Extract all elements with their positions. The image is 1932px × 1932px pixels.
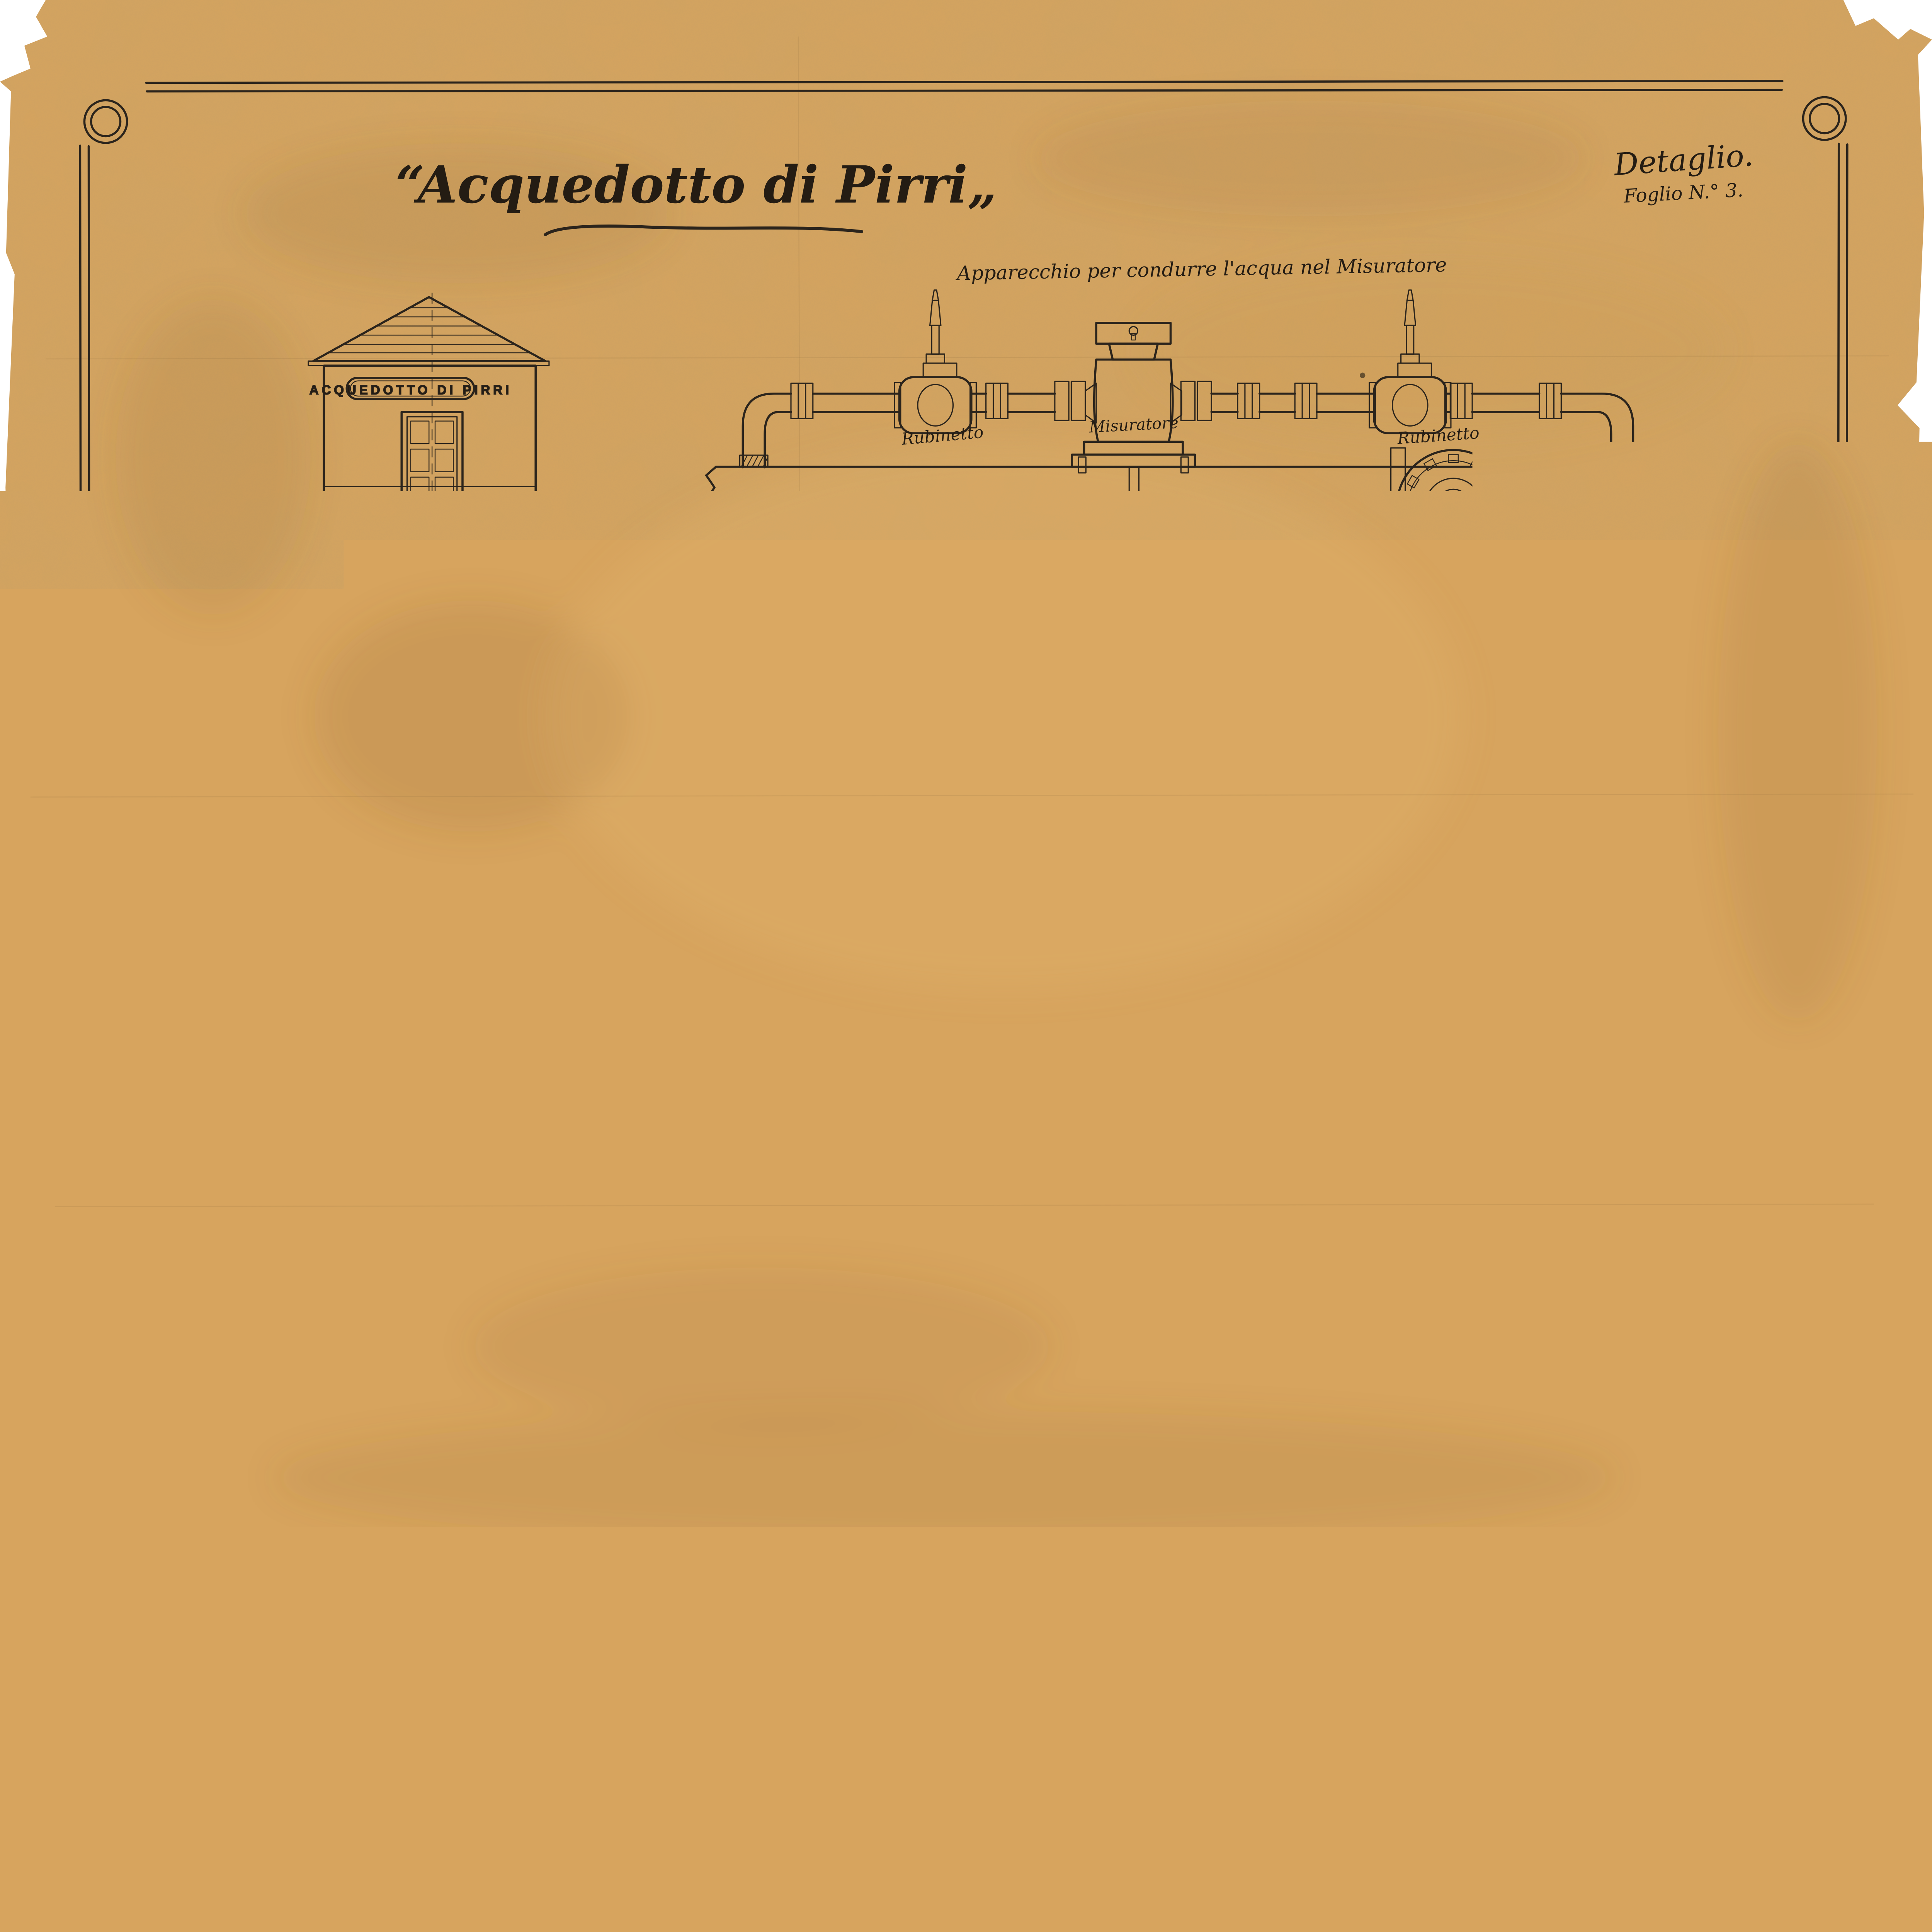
aqueduct-valve-label-right: per arresto bbox=[466, 862, 546, 881]
paper-background bbox=[0, 0, 1932, 1527]
section-dim-width: m. 4.00 bbox=[405, 1182, 461, 1199]
aqueduct-dest-right: Per Carongiu bbox=[528, 955, 643, 978]
aqueduct-branch-diam-value: m 0,152 bbox=[440, 911, 495, 927]
aqueduct-main-diam: Diam m. 0.38 bbox=[253, 1007, 353, 1028]
section-dim-wall-right: m. 0.40 bbox=[519, 1231, 561, 1243]
facade-caption: Facciata. bbox=[397, 525, 484, 550]
aqueduct-branch-label-right: innesto bbox=[446, 962, 500, 979]
tee-label-left: Tubo bbox=[983, 990, 1034, 1015]
facade-ground bbox=[290, 501, 569, 526]
section-dim-wall-left: m. 0.40 bbox=[304, 1233, 346, 1246]
tee-sub-left: ( Sezione bbox=[1018, 1019, 1099, 1043]
section-ground bbox=[247, 1199, 626, 1229]
section-point-b: B' bbox=[596, 1181, 614, 1201]
drawing-canvas: “Acquedotto di Pirri„ Detaglio. Foglio N… bbox=[0, 0, 1932, 1527]
plan-caption: Pianta bbox=[388, 687, 463, 718]
tube1-bottom-dim: m 0.127 bbox=[1502, 1199, 1556, 1214]
tube2-top-dim: m 0.101 bbox=[1657, 925, 1707, 939]
section-dim-h1: m. 2.00 bbox=[314, 1164, 328, 1210]
tube1-top-dim: m 0.152 bbox=[1502, 956, 1555, 971]
aqueduct-branch-diam-label: Diam. bbox=[388, 912, 428, 927]
aqueduct-valve-label-left: Rubinetto bbox=[356, 865, 427, 884]
facade-sign-text: ACQUEDOTTO DI PIRRI bbox=[310, 383, 512, 397]
aqueduct-branch-label-left: Tubo di bbox=[345, 964, 401, 981]
sheet-title: “Acquedotto di Pirri„ bbox=[395, 155, 997, 215]
tube2-bottom-dim: m 0.127 bbox=[1656, 1181, 1707, 1195]
plan-width-dim: m 4.00 bbox=[372, 724, 421, 740]
aqueduct-dest-left: Per Cagliari bbox=[213, 957, 317, 980]
tee-main-pipe bbox=[887, 1047, 1541, 1192]
plan-wall-stain-right bbox=[527, 633, 547, 764]
section-point-a: A bbox=[266, 1181, 280, 1201]
plan-meter-label: Misuratore bbox=[456, 724, 536, 743]
scanned-drawing-sheet: “Acquedotto di Pirri„ Detaglio. Foglio N… bbox=[0, 0, 1932, 1527]
plan-valve2-label: Rubinetto bbox=[452, 768, 524, 787]
